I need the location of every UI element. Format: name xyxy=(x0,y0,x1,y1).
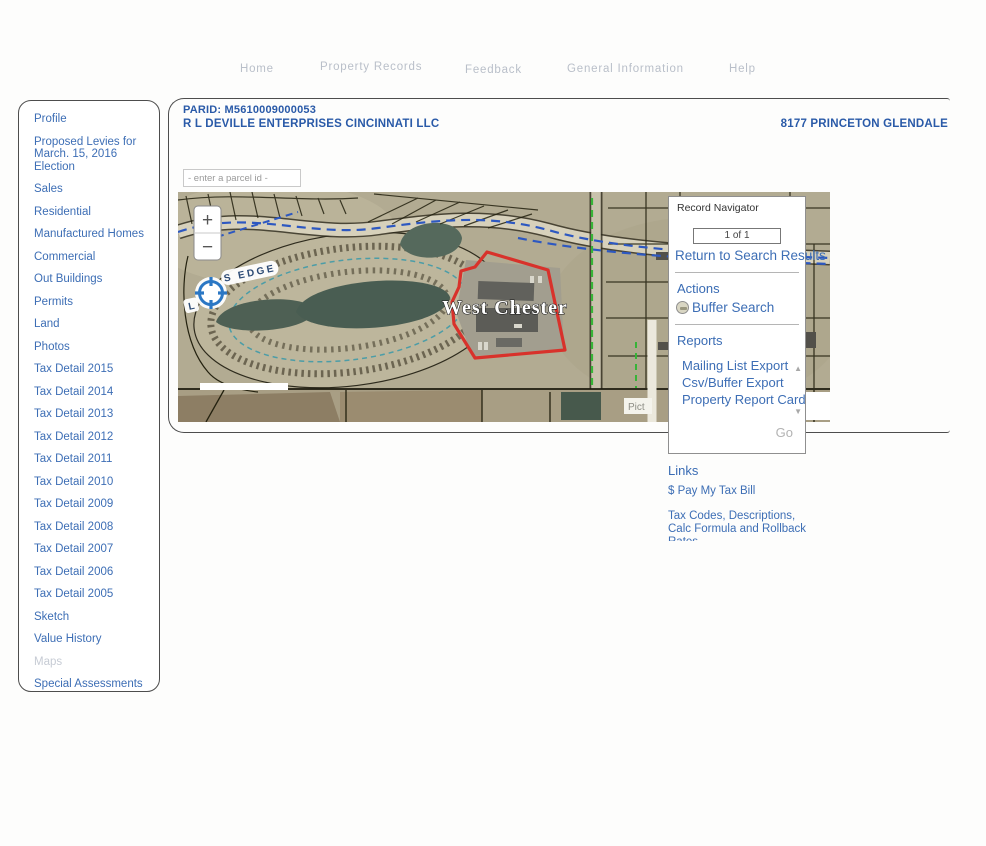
sidebar-item-out-buildings[interactable]: Out Buildings xyxy=(34,273,146,286)
reports-heading: Reports xyxy=(677,333,805,348)
tax-codes-link-clipped[interactable]: Rates xyxy=(668,536,818,541)
zoom-in-button[interactable]: + xyxy=(202,210,213,231)
nav-item-property-records[interactable]: Property Records xyxy=(320,61,422,73)
parcel-id-input[interactable] xyxy=(183,169,301,187)
map-scale-bar xyxy=(200,383,288,390)
sidebar-item-residential[interactable]: Residential xyxy=(34,206,146,219)
nav-item-help[interactable]: Help xyxy=(729,63,756,75)
sidebar-item-tax-detail-2014[interactable]: Tax Detail 2014 xyxy=(34,386,146,399)
record-navigator-panel: Record Navigator 1 of 1 Return to Search… xyxy=(668,196,806,454)
links-heading: Links xyxy=(668,463,818,478)
buffer-icon xyxy=(676,301,689,314)
record-position-box: 1 of 1 xyxy=(693,228,781,244)
sidebar-item-tax-detail-2009[interactable]: Tax Detail 2009 xyxy=(34,498,146,511)
sidebar-item-tax-detail-2015[interactable]: Tax Detail 2015 xyxy=(34,363,146,376)
sidebar-item-land[interactable]: Land xyxy=(34,318,146,331)
sidebar-item-permits[interactable]: Permits xyxy=(34,296,146,309)
report-item-property-report-card[interactable]: Property Report Card xyxy=(682,391,789,408)
scroll-up-icon[interactable]: ▲ xyxy=(794,360,802,377)
place-label: West Chester xyxy=(442,297,568,319)
tax-codes-link[interactable]: Tax Codes, Descriptions, Calc Formula an… xyxy=(668,510,818,536)
report-item-mailing-list-export[interactable]: Mailing List Export xyxy=(682,357,789,374)
buffer-search-label: Buffer Search xyxy=(692,300,774,315)
sidebar-item-manufactured-homes[interactable]: Manufactured Homes xyxy=(34,228,146,241)
divider xyxy=(675,272,799,273)
sidebar-item-tax-detail-2012[interactable]: Tax Detail 2012 xyxy=(34,431,146,444)
sidebar-item-tax-detail-2010[interactable]: Tax Detail 2010 xyxy=(34,476,146,489)
record-navigator-title: Record Navigator xyxy=(669,197,805,214)
pond-south xyxy=(561,392,601,420)
sidebar-item-maps: Maps xyxy=(34,656,146,669)
sidebar-item-proposed-levies[interactable]: Proposed Levies for March. 15, 2016 Elec… xyxy=(34,136,146,174)
locate-crosshair-icon xyxy=(195,277,227,309)
zoom-out-button[interactable]: − xyxy=(202,237,213,258)
top-navigation: Home Property Records Feedback General I… xyxy=(0,63,986,81)
sidebar-item-photos[interactable]: Photos xyxy=(34,341,146,354)
sidebar-item-tax-detail-2006[interactable]: Tax Detail 2006 xyxy=(34,566,146,579)
divider xyxy=(675,324,799,325)
parid-value: PARID: M5610009000053 xyxy=(183,104,316,116)
sidebar-item-sketch[interactable]: Sketch xyxy=(34,611,146,624)
map-attribution: Pict xyxy=(624,398,652,414)
sidebar-item-commercial[interactable]: Commercial xyxy=(34,251,146,264)
nav-item-feedback[interactable]: Feedback xyxy=(465,64,522,76)
sidebar-item-tax-detail-2013[interactable]: Tax Detail 2013 xyxy=(34,408,146,421)
property-address: 8177 PRINCETON GLENDALE xyxy=(781,118,948,130)
sidebar-item-value-history[interactable]: Value History xyxy=(34,633,146,646)
actions-heading: Actions xyxy=(677,281,805,296)
pay-my-tax-bill-link[interactable]: $ Pay My Tax Bill xyxy=(668,485,818,497)
sidebar-item-tax-detail-2008[interactable]: Tax Detail 2008 xyxy=(34,521,146,534)
scroll-down-icon[interactable]: ▼ xyxy=(794,403,802,420)
sidebar: Profile Proposed Levies for March. 15, 2… xyxy=(18,100,160,692)
sidebar-item-special-assessments[interactable]: Special Assessments xyxy=(34,678,146,691)
return-to-search-results-link[interactable]: Return to Search Results xyxy=(675,248,805,263)
sidebar-item-tax-detail-2011[interactable]: Tax Detail 2011 xyxy=(34,453,146,466)
report-item-csv-buffer-export[interactable]: Csv/Buffer Export xyxy=(682,374,789,391)
nav-item-home[interactable]: Home xyxy=(240,63,274,75)
svg-text:Pict: Pict xyxy=(628,402,645,413)
owner-name: R L DEVILLE ENTERPRISES CINCINNATI LLC xyxy=(183,118,439,130)
go-button[interactable]: Go xyxy=(776,425,793,440)
sidebar-item-tax-detail-2007[interactable]: Tax Detail 2007 xyxy=(34,543,146,556)
sidebar-item-tax-detail-2005[interactable]: Tax Detail 2005 xyxy=(34,588,146,601)
map-zoom-control: + − xyxy=(194,206,221,260)
sidebar-item-profile[interactable]: Profile xyxy=(34,113,146,126)
reports-listbox: Mailing List Export Csv/Buffer Export Pr… xyxy=(682,357,805,423)
nav-item-general-information[interactable]: General Information xyxy=(567,63,684,75)
links-section: Links $ Pay My Tax Bill Tax Codes, Descr… xyxy=(668,463,818,541)
sidebar-item-sales[interactable]: Sales xyxy=(34,183,146,196)
buffer-search-link[interactable]: Buffer Search xyxy=(676,300,805,315)
